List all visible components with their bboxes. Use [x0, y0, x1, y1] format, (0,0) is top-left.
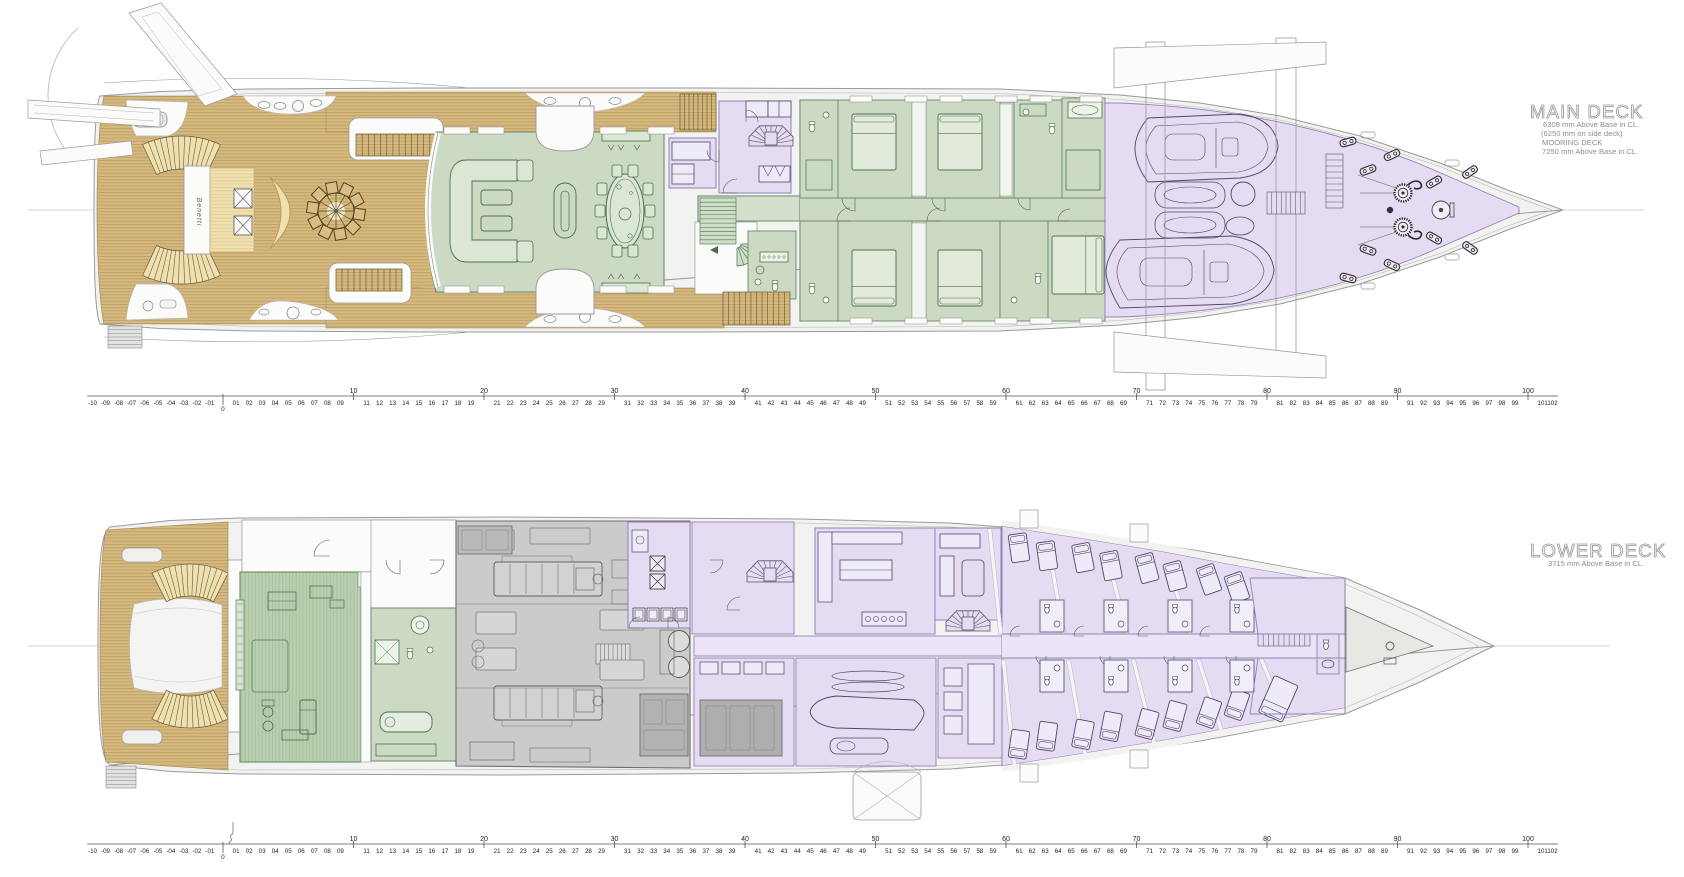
svg-text:92: 92 [1420, 848, 1427, 855]
svg-text:15: 15 [415, 848, 422, 855]
svg-text:24: 24 [533, 400, 540, 407]
svg-text:7250 mm Above Base in CL.: 7250 mm Above Base in CL. [1542, 147, 1638, 156]
svg-text:42: 42 [768, 848, 775, 855]
svg-text:63: 63 [1042, 400, 1049, 407]
svg-text:38: 38 [715, 400, 722, 407]
svg-text:38: 38 [715, 848, 722, 855]
svg-text:17: 17 [441, 848, 448, 855]
svg-text:-01: -01 [205, 400, 215, 407]
svg-text:16: 16 [428, 848, 435, 855]
svg-text:-10: -10 [88, 400, 98, 407]
svg-text:67: 67 [1094, 848, 1101, 855]
svg-text:26: 26 [559, 848, 566, 855]
svg-text:83: 83 [1303, 848, 1310, 855]
svg-text:09: 09 [337, 400, 344, 407]
svg-text:63: 63 [1042, 848, 1049, 855]
svg-text:78: 78 [1237, 848, 1244, 855]
svg-text:43: 43 [781, 400, 788, 407]
svg-text:86: 86 [1342, 848, 1349, 855]
svg-text:-06: -06 [140, 848, 150, 855]
svg-text:54: 54 [924, 848, 931, 855]
svg-text:90: 90 [1394, 836, 1402, 843]
svg-text:101102: 101102 [1538, 400, 1559, 407]
svg-text:-02: -02 [192, 848, 202, 855]
svg-text:69: 69 [1120, 848, 1127, 855]
svg-text:19: 19 [468, 400, 475, 407]
svg-text:61: 61 [1016, 400, 1023, 407]
svg-text:97: 97 [1485, 848, 1492, 855]
svg-text:64: 64 [1055, 400, 1062, 407]
svg-text:13: 13 [389, 400, 396, 407]
svg-text:28: 28 [585, 848, 592, 855]
svg-text:39: 39 [729, 848, 736, 855]
svg-text:93: 93 [1433, 848, 1440, 855]
svg-text:23: 23 [520, 400, 527, 407]
svg-text:52: 52 [898, 400, 905, 407]
svg-text:16: 16 [428, 400, 435, 407]
svg-text:23: 23 [520, 848, 527, 855]
svg-text:91: 91 [1407, 848, 1414, 855]
svg-text:-02: -02 [192, 400, 202, 407]
svg-text:66: 66 [1081, 400, 1088, 407]
svg-text:14: 14 [402, 400, 409, 407]
svg-text:29: 29 [598, 400, 605, 407]
svg-text:50: 50 [872, 836, 880, 843]
svg-text:89: 89 [1381, 400, 1388, 407]
svg-text:68: 68 [1107, 848, 1114, 855]
svg-text:Benetti: Benetti [195, 198, 202, 227]
svg-text:04: 04 [272, 400, 279, 407]
svg-text:101102: 101102 [1538, 848, 1559, 855]
svg-text:54: 54 [924, 400, 931, 407]
svg-text:18: 18 [454, 400, 461, 407]
svg-text:95: 95 [1459, 848, 1466, 855]
svg-text:08: 08 [324, 848, 331, 855]
svg-text:64: 64 [1055, 848, 1062, 855]
svg-text:65: 65 [1068, 848, 1075, 855]
svg-text:48: 48 [846, 848, 853, 855]
svg-text:35: 35 [676, 848, 683, 855]
svg-text:65: 65 [1068, 400, 1075, 407]
svg-text:0: 0 [221, 854, 225, 861]
svg-text:58: 58 [976, 848, 983, 855]
svg-text:-06: -06 [140, 400, 150, 407]
svg-text:10: 10 [350, 388, 358, 395]
svg-text:-07: -07 [127, 848, 137, 855]
svg-text:53: 53 [911, 400, 918, 407]
svg-text:0: 0 [221, 406, 225, 413]
svg-text:47: 47 [833, 400, 840, 407]
svg-text:13: 13 [389, 848, 396, 855]
svg-text:33: 33 [650, 400, 657, 407]
svg-text:25: 25 [546, 848, 553, 855]
svg-text:07: 07 [311, 848, 318, 855]
svg-text:56: 56 [950, 400, 957, 407]
svg-text:03: 03 [259, 400, 266, 407]
svg-text:05: 05 [285, 848, 292, 855]
svg-text:94: 94 [1446, 848, 1453, 855]
svg-text:-09: -09 [101, 848, 111, 855]
svg-text:41: 41 [755, 400, 762, 407]
svg-text:60: 60 [1002, 836, 1010, 843]
svg-text:52: 52 [898, 848, 905, 855]
svg-text:06: 06 [298, 400, 305, 407]
svg-text:62: 62 [1029, 400, 1036, 407]
svg-text:40: 40 [741, 836, 749, 843]
svg-text:91: 91 [1407, 400, 1414, 407]
svg-text:96: 96 [1472, 400, 1479, 407]
svg-text:-03: -03 [179, 848, 189, 855]
svg-text:36: 36 [689, 848, 696, 855]
svg-text:03: 03 [259, 848, 266, 855]
svg-text:48: 48 [846, 400, 853, 407]
svg-text:88: 88 [1368, 848, 1375, 855]
svg-text:77: 77 [1224, 848, 1231, 855]
svg-text:12: 12 [376, 848, 383, 855]
svg-text:75: 75 [1198, 400, 1205, 407]
svg-text:10: 10 [350, 836, 358, 843]
svg-text:59: 59 [990, 400, 997, 407]
svg-text:72: 72 [1159, 848, 1166, 855]
svg-text:25: 25 [546, 400, 553, 407]
svg-text:84: 84 [1316, 400, 1323, 407]
svg-text:57: 57 [963, 400, 970, 407]
svg-text:58: 58 [976, 400, 983, 407]
svg-text:-04: -04 [166, 848, 176, 855]
svg-text:55: 55 [937, 848, 944, 855]
svg-text:-01: -01 [205, 848, 215, 855]
svg-text:01: 01 [233, 848, 240, 855]
svg-text:11: 11 [363, 848, 370, 855]
svg-text:69: 69 [1120, 400, 1127, 407]
svg-text:-03: -03 [179, 400, 189, 407]
svg-text:100: 100 [1522, 836, 1534, 843]
svg-text:77: 77 [1224, 400, 1231, 407]
svg-text:79: 79 [1251, 848, 1258, 855]
svg-text:45: 45 [807, 400, 814, 407]
svg-text:93: 93 [1433, 400, 1440, 407]
svg-text:37: 37 [702, 848, 709, 855]
svg-text:56: 56 [950, 848, 957, 855]
svg-text:-05: -05 [153, 400, 163, 407]
svg-text:86: 86 [1342, 400, 1349, 407]
svg-text:27: 27 [572, 400, 579, 407]
svg-text:37: 37 [702, 400, 709, 407]
svg-text:92: 92 [1420, 400, 1427, 407]
svg-text:31: 31 [624, 400, 631, 407]
svg-text:44: 44 [794, 400, 801, 407]
svg-text:51: 51 [885, 400, 892, 407]
svg-text:33: 33 [650, 848, 657, 855]
svg-text:53: 53 [911, 848, 918, 855]
svg-text:43: 43 [781, 848, 788, 855]
svg-text:18: 18 [454, 848, 461, 855]
svg-text:15: 15 [415, 400, 422, 407]
svg-text:19: 19 [468, 848, 475, 855]
svg-text:76: 76 [1211, 400, 1218, 407]
svg-text:22: 22 [507, 400, 514, 407]
svg-text:41: 41 [755, 848, 762, 855]
svg-text:39: 39 [729, 400, 736, 407]
svg-text:44: 44 [794, 848, 801, 855]
svg-text:-08: -08 [114, 848, 124, 855]
svg-text:66: 66 [1081, 848, 1088, 855]
svg-text:24: 24 [533, 848, 540, 855]
svg-text:67: 67 [1094, 400, 1101, 407]
svg-text:06: 06 [298, 848, 305, 855]
svg-text:81: 81 [1277, 848, 1284, 855]
svg-text:27: 27 [572, 848, 579, 855]
svg-text:-08: -08 [114, 400, 124, 407]
svg-text:-10: -10 [88, 848, 98, 855]
svg-text:30: 30 [611, 388, 619, 395]
svg-text:68: 68 [1107, 400, 1114, 407]
svg-text:20: 20 [480, 836, 488, 843]
svg-text:74: 74 [1185, 400, 1192, 407]
svg-text:84: 84 [1316, 848, 1323, 855]
svg-text:34: 34 [663, 848, 670, 855]
svg-text:-07: -07 [127, 400, 137, 407]
svg-text:96: 96 [1472, 848, 1479, 855]
svg-text:100: 100 [1522, 388, 1534, 395]
svg-text:82: 82 [1290, 400, 1297, 407]
svg-text:49: 49 [859, 848, 866, 855]
svg-text:22: 22 [507, 848, 514, 855]
svg-text:31: 31 [624, 848, 631, 855]
svg-text:71: 71 [1146, 848, 1153, 855]
svg-text:14: 14 [402, 848, 409, 855]
svg-text:71: 71 [1146, 400, 1153, 407]
svg-text:01: 01 [233, 400, 240, 407]
svg-text:95: 95 [1459, 400, 1466, 407]
svg-text:78: 78 [1237, 400, 1244, 407]
svg-text:99: 99 [1512, 848, 1519, 855]
svg-text:36: 36 [689, 400, 696, 407]
svg-text:50: 50 [872, 388, 880, 395]
svg-text:28: 28 [585, 400, 592, 407]
svg-text:72: 72 [1159, 400, 1166, 407]
svg-text:21: 21 [494, 400, 501, 407]
svg-text:21: 21 [494, 848, 501, 855]
svg-text:82: 82 [1290, 848, 1297, 855]
svg-text:46: 46 [820, 848, 827, 855]
svg-text:02: 02 [246, 400, 253, 407]
svg-text:08: 08 [324, 400, 331, 407]
svg-text:87: 87 [1355, 848, 1362, 855]
svg-text:61: 61 [1016, 848, 1023, 855]
svg-text:85: 85 [1329, 400, 1336, 407]
svg-text:97: 97 [1485, 400, 1492, 407]
svg-text:55: 55 [937, 400, 944, 407]
svg-text:49: 49 [859, 400, 866, 407]
svg-text:80: 80 [1263, 836, 1271, 843]
svg-text:35: 35 [676, 400, 683, 407]
svg-text:12: 12 [376, 400, 383, 407]
svg-text:46: 46 [820, 400, 827, 407]
svg-text:29: 29 [598, 848, 605, 855]
svg-text:90: 90 [1394, 388, 1402, 395]
svg-text:88: 88 [1368, 400, 1375, 407]
svg-text:47: 47 [833, 848, 840, 855]
svg-text:59: 59 [990, 848, 997, 855]
svg-text:73: 73 [1172, 400, 1179, 407]
svg-text:73: 73 [1172, 848, 1179, 855]
svg-text:32: 32 [637, 400, 644, 407]
svg-text:3715 mm Above Base in CL.: 3715 mm Above Base in CL. [1548, 559, 1644, 568]
svg-text:32: 32 [637, 848, 644, 855]
svg-text:-09: -09 [101, 400, 111, 407]
svg-text:51: 51 [885, 848, 892, 855]
svg-text:30: 30 [611, 836, 619, 843]
svg-text:83: 83 [1303, 400, 1310, 407]
svg-text:70: 70 [1133, 388, 1141, 395]
svg-text:45: 45 [807, 848, 814, 855]
svg-text:98: 98 [1498, 400, 1505, 407]
svg-text:99: 99 [1512, 400, 1519, 407]
svg-text:(6250 mm on side deck): (6250 mm on side deck) [1541, 129, 1623, 138]
svg-text:42: 42 [768, 400, 775, 407]
svg-text:98: 98 [1498, 848, 1505, 855]
svg-text:75: 75 [1198, 848, 1205, 855]
svg-text:34: 34 [663, 400, 670, 407]
svg-text:02: 02 [246, 848, 253, 855]
svg-text:MOORING DECK: MOORING DECK [1542, 138, 1602, 147]
svg-text:80: 80 [1263, 388, 1271, 395]
svg-text:57: 57 [963, 848, 970, 855]
svg-text:81: 81 [1277, 400, 1284, 407]
svg-text:20: 20 [480, 388, 488, 395]
svg-text:70: 70 [1133, 836, 1141, 843]
svg-text:11: 11 [363, 400, 370, 407]
svg-text:04: 04 [272, 848, 279, 855]
svg-text:-05: -05 [153, 848, 163, 855]
svg-text:94: 94 [1446, 400, 1453, 407]
svg-text:LOWER DECK: LOWER DECK [1530, 540, 1666, 561]
svg-text:26: 26 [559, 400, 566, 407]
svg-text:89: 89 [1381, 848, 1388, 855]
svg-text:-04: -04 [166, 400, 176, 407]
svg-text:09: 09 [337, 848, 344, 855]
svg-text:17: 17 [441, 400, 448, 407]
svg-text:79: 79 [1251, 400, 1258, 407]
svg-text:07: 07 [311, 400, 318, 407]
svg-text:85: 85 [1329, 848, 1336, 855]
svg-text:74: 74 [1185, 848, 1192, 855]
svg-text:6309 mm Above Base in CL.: 6309 mm Above Base in CL. [1543, 120, 1639, 129]
svg-text:87: 87 [1355, 400, 1362, 407]
svg-text:MAIN DECK: MAIN DECK [1530, 101, 1644, 122]
svg-text:05: 05 [285, 400, 292, 407]
svg-text:62: 62 [1029, 848, 1036, 855]
svg-text:76: 76 [1211, 848, 1218, 855]
svg-text:60: 60 [1002, 388, 1010, 395]
svg-text:40: 40 [741, 388, 749, 395]
